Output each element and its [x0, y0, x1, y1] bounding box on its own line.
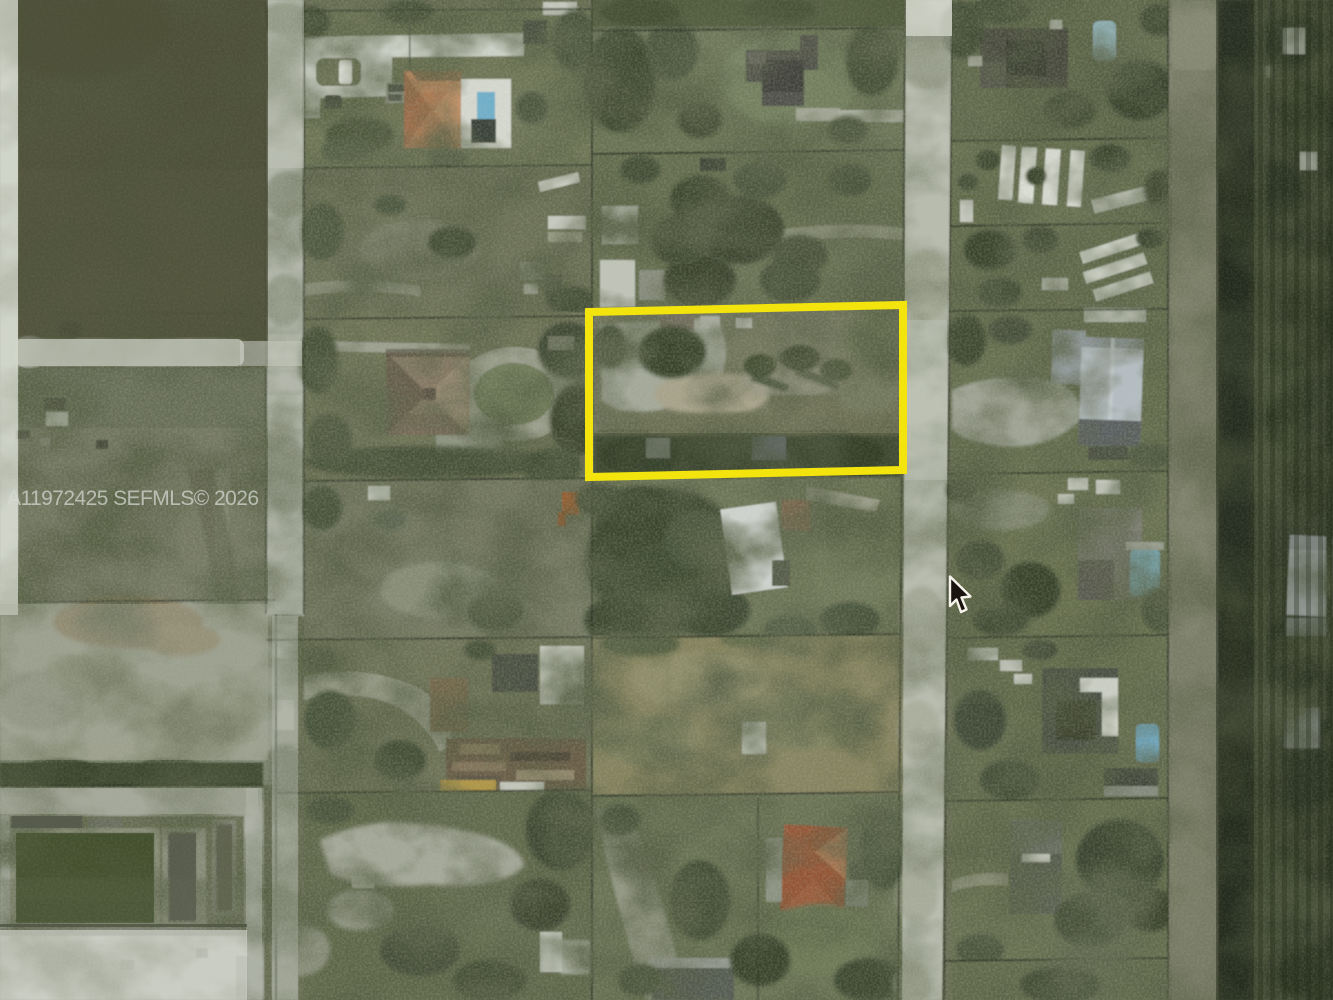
svg-text:A11972425 SEFMLS© 2026: A11972425 SEFMLS© 2026: [7, 487, 259, 510]
